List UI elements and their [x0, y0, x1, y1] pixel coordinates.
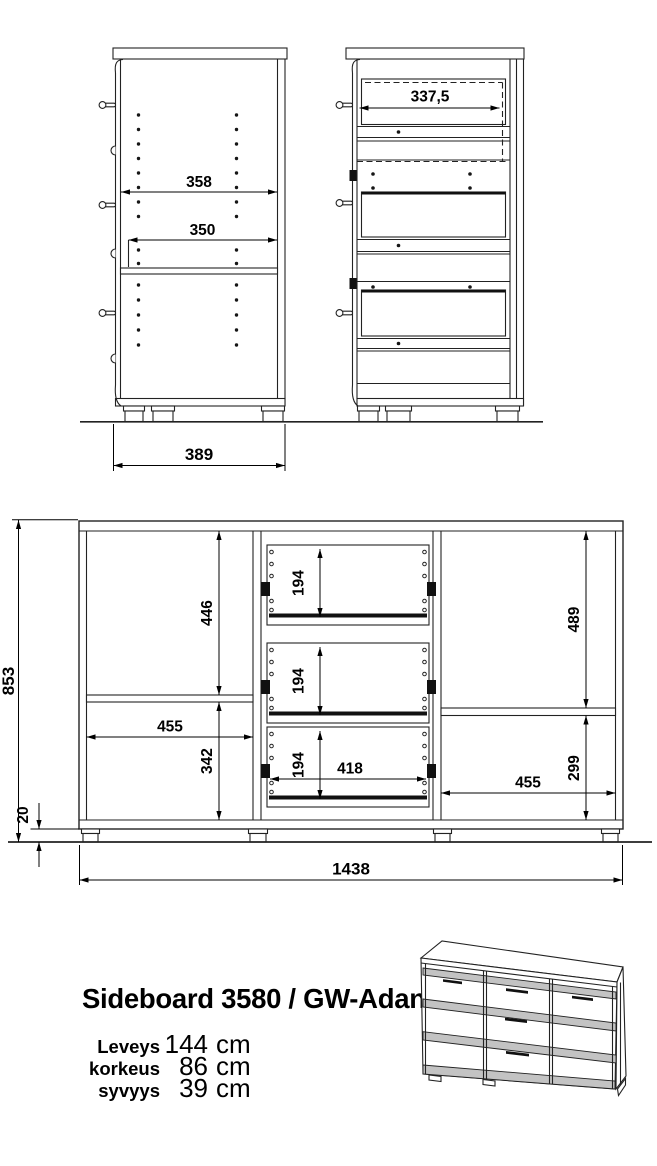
foot — [429, 1075, 441, 1082]
hinge-pin — [99, 102, 115, 109]
hinge-pin — [99, 310, 115, 317]
dim-label-194: 194 — [291, 668, 308, 694]
spec-unit: cm — [216, 1077, 251, 1099]
dim-label-342: 342 — [199, 748, 216, 774]
dim-label-337-5: 337,5 — [411, 89, 450, 106]
dim-853: 853 — [0, 520, 78, 842]
dim-389: 389 — [114, 424, 286, 471]
door-edge — [350, 59, 361, 406]
shelf-pin-holes — [137, 113, 238, 346]
runner-clip — [261, 764, 270, 778]
dim-label-350: 350 — [190, 222, 216, 239]
dim-label-194: 194 — [291, 752, 308, 778]
foot — [262, 406, 285, 422]
spec-value: 39 — [160, 1077, 208, 1099]
dim-20: 20 — [15, 803, 79, 867]
dim-label-299: 299 — [566, 755, 583, 781]
foot — [124, 406, 145, 422]
drawer-box — [362, 192, 506, 237]
dim-label-455-right: 455 — [515, 775, 541, 792]
runner-clip — [427, 764, 436, 778]
spec-row-depth: syvyys39cm — [60, 1077, 320, 1099]
runner-clip — [427, 680, 436, 694]
dim-label-853: 853 — [0, 667, 18, 695]
top-panel — [113, 48, 287, 59]
foot — [386, 406, 412, 422]
product-illustration-3d — [380, 925, 657, 1166]
dim-label-358: 358 — [186, 174, 212, 191]
hinge-pin — [99, 202, 115, 209]
right-shelf — [441, 708, 616, 716]
dim-1438: 1438 — [80, 845, 623, 885]
runner-clip — [427, 582, 436, 596]
foot — [483, 1080, 495, 1087]
runner-clip — [261, 582, 270, 596]
side-view-right: 337,5 — [336, 48, 524, 422]
foot — [434, 829, 452, 842]
hinge-cup — [111, 249, 116, 258]
front-view-drawing: 853 20 446 342 — [0, 490, 657, 910]
drawer-rails — [357, 339, 510, 384]
dim-label-455-left: 455 — [157, 719, 183, 736]
runner-clip — [261, 680, 270, 694]
foot — [602, 829, 620, 842]
dim-label-489: 489 — [566, 606, 583, 632]
hinge-cup — [111, 146, 116, 155]
dim-label-446: 446 — [199, 600, 216, 626]
foot — [82, 829, 100, 842]
side-view-left: 358 350 389 — [99, 48, 287, 471]
foot — [152, 406, 175, 422]
hinge-cup — [111, 354, 116, 363]
door-edge — [111, 59, 123, 406]
front-view: 853 20 446 342 — [0, 520, 652, 885]
dim-label-20: 20 — [15, 806, 32, 823]
shelf — [121, 268, 278, 274]
hinge-pin — [336, 102, 352, 109]
hinge-pin — [336, 200, 352, 207]
foot — [358, 406, 380, 422]
technical-drawing-page: 358 350 389 — [0, 0, 657, 1166]
bottom-panel — [357, 399, 524, 407]
drawer-opening-1 — [261, 545, 436, 625]
dim-label-194: 194 — [291, 570, 308, 596]
foot — [249, 829, 268, 842]
side-views-drawing: 358 350 389 — [0, 0, 657, 490]
drawer-opening-2 — [261, 643, 436, 723]
sideboard-3d — [421, 941, 626, 1096]
hinge-pin — [336, 310, 352, 317]
product-specs: Leveys144cm korkeus86cm syvyys39cm — [60, 1033, 320, 1099]
drawer-box — [362, 290, 506, 336]
hinge-plate — [350, 278, 357, 289]
dim-label-389: 389 — [185, 445, 213, 464]
dim-label-1438: 1438 — [332, 860, 370, 879]
left-shelf — [87, 695, 254, 702]
drawer-rails — [357, 127, 510, 190]
hinge-plate — [350, 170, 357, 181]
foot — [496, 406, 520, 422]
top-panel — [346, 48, 524, 59]
dim-label-418: 418 — [337, 761, 363, 778]
spec-label: syvyys — [60, 1080, 160, 1102]
bottom-panel — [116, 399, 286, 407]
dim-350: 350 — [129, 222, 278, 243]
dim-358: 358 — [121, 174, 277, 195]
drawer-rails — [357, 240, 510, 289]
